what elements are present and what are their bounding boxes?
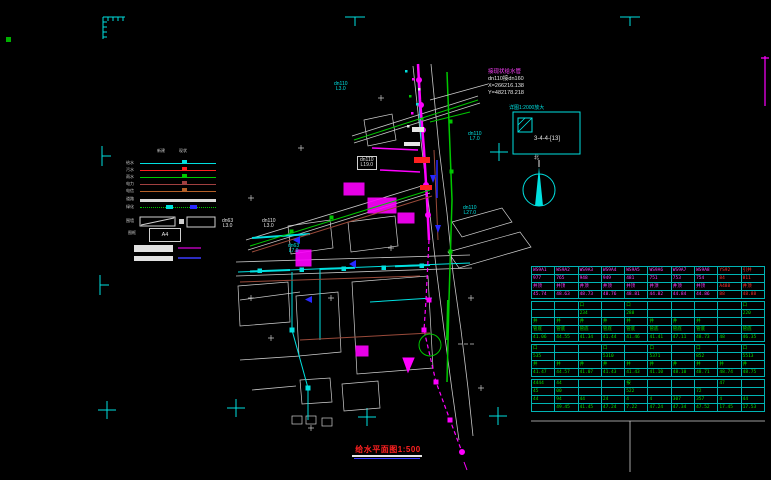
table-cell: 井 [671, 318, 694, 326]
annotation-line-4: Y=482178.218 [488, 90, 524, 97]
table-cell: 4 [648, 396, 671, 404]
table-cell: 管底 [578, 326, 601, 334]
table-cell [648, 310, 671, 318]
legend-line-sample [140, 163, 216, 164]
annotation-line-2: dn110接dn160 [488, 76, 524, 83]
table-cell: 41.41 [648, 334, 671, 342]
table-cell: 井顶 [741, 283, 764, 291]
legend-row-label: 道路 [126, 197, 134, 201]
table-cell: 45.74 [532, 291, 555, 299]
table-cell: 口 [601, 345, 624, 353]
table-cell: 井 [671, 361, 694, 369]
table-cell: 522 [625, 388, 648, 396]
table-cell: 00 [555, 388, 578, 396]
table-cell: WS9A7 [671, 267, 694, 275]
table-cell: 24 [601, 396, 624, 404]
table-cell [671, 310, 694, 318]
legend-line-sample [140, 170, 216, 171]
annotation-line-3: X=266216.138 [488, 83, 524, 90]
legend-fitting-symbol [182, 167, 187, 170]
table-cell: 72 [695, 388, 718, 396]
table-cell: 88 [718, 291, 741, 299]
table-cell: 井 [741, 361, 764, 369]
table-cell: 46.35 [741, 334, 764, 342]
table-cell: 41.34 [578, 334, 601, 342]
table-cell [532, 404, 555, 412]
table-cell: 47 [718, 380, 741, 388]
table-cell: 94 [555, 396, 578, 404]
table-cell [718, 310, 741, 318]
table-cell: 288 [625, 310, 648, 318]
table-cell: 口 [578, 302, 601, 310]
table-cell [555, 310, 578, 318]
table-cell: 753 [671, 275, 694, 283]
table-cell [578, 345, 601, 353]
table-cell [625, 345, 648, 353]
table-cell: 48.76 [601, 291, 624, 299]
table-cell [601, 310, 624, 318]
table-cell: A488 [718, 283, 741, 291]
table-cell: 井 [648, 361, 671, 369]
table-section: 444444按47450052272449444244430735744449.… [531, 379, 765, 412]
table-cell: 井顶 [625, 283, 648, 291]
table-cell: 4444 [532, 380, 555, 388]
legend-fitting-symbol [182, 174, 187, 177]
legend-frame-label: 图框 [128, 231, 136, 235]
table-cell [718, 326, 741, 334]
table-cell: 48.63 [555, 291, 578, 299]
table-cell: 48.10 [671, 369, 694, 377]
table-cell [625, 353, 648, 361]
legend-line-sample [140, 199, 216, 202]
table-cell: 41.44 [601, 334, 624, 342]
table-cell: 5513 [741, 353, 764, 361]
table-cell: 管底 [648, 326, 671, 334]
table-cell: 948 [578, 275, 601, 283]
table-cell [718, 318, 741, 326]
table-cell: 井 [718, 361, 741, 369]
table-cell: 48.71 [695, 369, 718, 377]
table-cell: WS9A6 [648, 267, 671, 275]
table-section: WS9A1WS9A2WS9A3WS9A4WS9A5WS9A6WS9A7WS9A8… [531, 266, 765, 299]
table-cell [555, 345, 578, 353]
table-cell: 44.84 [671, 291, 694, 299]
cad-canvas[interactable]: dn110L3.0dn110L19.0dn63L3.0dn110L3.0dn11… [0, 0, 771, 480]
pipe-label: dn110L7.0 [468, 132, 482, 142]
pipe-label: dn63L7.0 [288, 244, 299, 254]
table-cell: 口 [695, 345, 718, 353]
table-cell: 17.53 [741, 404, 764, 412]
table-cell: 535 [532, 353, 555, 361]
table-cell [695, 380, 718, 388]
legend-col-header-new: 新建 [157, 149, 165, 153]
table-cell: 管底 [671, 326, 694, 334]
table-cell: 48 [718, 334, 741, 342]
legend-row-label: 污水 [126, 168, 134, 172]
table-cell [718, 388, 741, 396]
table-cell: 44 [741, 396, 764, 404]
table-cell: 49.45 [555, 404, 578, 412]
table-cell: WS9A8 [695, 267, 718, 275]
table-cell [578, 380, 601, 388]
table-cell: 48.81 [625, 291, 648, 299]
legend-line-sample [140, 207, 216, 208]
table-cell: 井顶 [671, 283, 694, 291]
junction-annotation: 接现状给水管 dn110接dn160 X=266216.138 Y=482178… [488, 69, 524, 97]
pipe-label: dn110L3.0 [334, 82, 348, 92]
legend-row-label: 雨水 [126, 175, 134, 179]
table-cell: 井 [578, 361, 601, 369]
table-cell: 765 [555, 275, 578, 283]
legend-fitting-symbol [182, 160, 187, 163]
table-cell: 481 [625, 275, 648, 283]
legend-row-label: 绿化 [126, 205, 134, 209]
table-cell: 口 [741, 345, 764, 353]
table-cell: 234 [578, 310, 601, 318]
table-cell [741, 318, 764, 326]
table-cell: 41.43 [625, 369, 648, 377]
table-cell: 47.24 [648, 404, 671, 412]
table-cell: 井顶 [532, 283, 555, 291]
table-cell [671, 353, 694, 361]
table-cell: 井 [555, 318, 578, 326]
legend-fitting-symbol [182, 188, 187, 191]
legend-row-label: 电信 [126, 189, 134, 193]
table-cell: 307 [671, 396, 694, 404]
table-cell [532, 302, 555, 310]
table-cell: 754 [695, 275, 718, 283]
table-cell: 47.24 [601, 404, 624, 412]
table-cell: 井 [578, 318, 601, 326]
table-cell: WS9A5 [625, 267, 648, 275]
legend-col-header-existing: 现状 [179, 149, 187, 153]
table-cell: 井 [601, 361, 624, 369]
table-cell: 41.10 [648, 369, 671, 377]
pipe-label: dn110L3.0 [262, 219, 276, 229]
table-section: 口口口234288220井井井井井井井井管底管底管底管底管底管底管底管底管底41… [531, 301, 765, 342]
legend-frame-sample: A4 [149, 228, 181, 242]
table-cell [718, 353, 741, 361]
pipe-label: dn63L3.0 [222, 219, 233, 229]
table-cell: 84 [718, 275, 741, 283]
table-cell [555, 353, 578, 361]
legend-line-sample [140, 191, 216, 192]
table-cell: 44.55 [555, 334, 578, 342]
table-cell: 按 [625, 380, 648, 388]
table-cell [718, 302, 741, 310]
table-cell: 井顶 [578, 283, 601, 291]
table-cell: 44.82 [648, 291, 671, 299]
table-cell: 管底 [741, 326, 764, 334]
table-cell [741, 388, 764, 396]
north-label: 北 [534, 154, 539, 161]
pipe-label: dn110L19.0 [357, 156, 377, 170]
table-cell: 井 [695, 361, 718, 369]
table-cell: 引井 [741, 267, 764, 275]
table-cell: 949 [601, 275, 624, 283]
table-cell: 管底 [695, 326, 718, 334]
table-cell: 811 [741, 275, 764, 283]
table-cell: 41.46 [625, 334, 648, 342]
legend-dot-symbol [166, 205, 173, 209]
table-cell [671, 380, 694, 388]
table-cell [695, 302, 718, 310]
table-cell [671, 302, 694, 310]
legend-line-sample [140, 184, 216, 185]
table-cell: 管底 [625, 326, 648, 334]
table-cell: 4 [625, 396, 648, 404]
detail-caption: 详图1:2000放大 [509, 104, 544, 111]
table-cell: 7.22 [625, 404, 648, 412]
pipe-label: dn110L27.0 [463, 206, 477, 216]
table-cell [648, 380, 671, 388]
table-cell: 井 [648, 318, 671, 326]
legend-dot-symbol [190, 205, 197, 209]
table-cell: 47.52 [695, 404, 718, 412]
title-underline-white [352, 455, 422, 457]
table-cell: 41.47 [532, 369, 555, 377]
table-cell: 41.07 [578, 369, 601, 377]
table-cell: 井顶 [601, 283, 624, 291]
table-cell: 井 [601, 318, 624, 326]
table-cell: 220 [741, 310, 764, 318]
table-cell: 4 [718, 396, 741, 404]
table-cell: 751 [648, 275, 671, 283]
table-cell: 管底 [555, 326, 578, 334]
table-section: 口口口口口535531053718525513井井井井井井井井井井41.4744… [531, 344, 765, 377]
table-cell [671, 345, 694, 353]
table-cell [601, 388, 624, 396]
table-cell: WS9A1 [532, 267, 555, 275]
well-data-table: WS9A1WS9A2WS9A3WS9A4WS9A5WS9A6WS9A7WS9A8… [531, 266, 765, 414]
table-cell: 47.34 [671, 404, 694, 412]
table-cell: 48.75 [741, 369, 764, 377]
legend-row-label: 电力 [126, 182, 134, 186]
table-cell: 48.88 [741, 291, 764, 299]
table-cell: 管底 [601, 326, 624, 334]
table-cell: WS9A3 [578, 267, 601, 275]
table-cell [671, 388, 694, 396]
table-cell: 井 [555, 361, 578, 369]
table-cell: 41.06 [532, 334, 555, 342]
table-cell: 44 [532, 396, 555, 404]
legend-line-sample [140, 177, 216, 178]
table-cell: YS92 [718, 267, 741, 275]
table-cell: 44 [578, 396, 601, 404]
legend-slope-label: 围墙 [126, 219, 134, 223]
table-cell [648, 302, 671, 310]
table-cell: 管底 [532, 326, 555, 334]
table-cell: 井顶 [695, 283, 718, 291]
table-cell [695, 310, 718, 318]
table-cell: 44.57 [555, 369, 578, 377]
table-cell: 口 [741, 302, 764, 310]
table-cell: 井 [695, 318, 718, 326]
table-cell: WS9A2 [555, 267, 578, 275]
table-cell [741, 380, 764, 388]
table-cell: 48.73 [695, 334, 718, 342]
table-cell: 井顶 [555, 283, 578, 291]
table-cell [648, 388, 671, 396]
detail-ref-label: 3-4-4-[13] [516, 136, 578, 142]
legend-row-label: 给水 [126, 161, 134, 165]
table-cell: 852 [695, 353, 718, 361]
table-cell [555, 302, 578, 310]
table-cell: 44 [555, 380, 578, 388]
table-cell [718, 345, 741, 353]
table-cell [601, 302, 624, 310]
annotation-line-1: 接现状给水管 [488, 69, 524, 76]
table-cell: 48.73 [578, 291, 601, 299]
table-cell: 口 [532, 345, 555, 353]
table-cell: 44.86 [695, 291, 718, 299]
table-cell: WS9A4 [601, 267, 624, 275]
drawing-title: 给水平面图1:500 [348, 444, 428, 455]
table-cell: 井 [532, 318, 555, 326]
table-cell: 977 [532, 275, 555, 283]
table-cell [601, 380, 624, 388]
title-underline-blue [354, 458, 420, 459]
legend-fitting-symbol [182, 181, 187, 184]
table-cell: 17.45 [718, 404, 741, 412]
table-cell: 41.43 [601, 369, 624, 377]
table-cell [578, 388, 601, 396]
table-cell: 5371 [648, 353, 671, 361]
table-cell: 357 [695, 396, 718, 404]
table-cell: 井顶 [648, 283, 671, 291]
table-cell [532, 310, 555, 318]
table-cell: 井 [532, 361, 555, 369]
table-cell: 口 [648, 345, 671, 353]
table-cell [578, 353, 601, 361]
table-cell: 48.74 [718, 369, 741, 377]
table-cell: 47.11 [671, 334, 694, 342]
table-cell: 41.45 [578, 404, 601, 412]
table-cell: 5310 [601, 353, 624, 361]
table-cell: 45 [532, 388, 555, 396]
table-cell: 口 [625, 302, 648, 310]
table-cell: 井 [625, 318, 648, 326]
table-cell: 井 [625, 361, 648, 369]
